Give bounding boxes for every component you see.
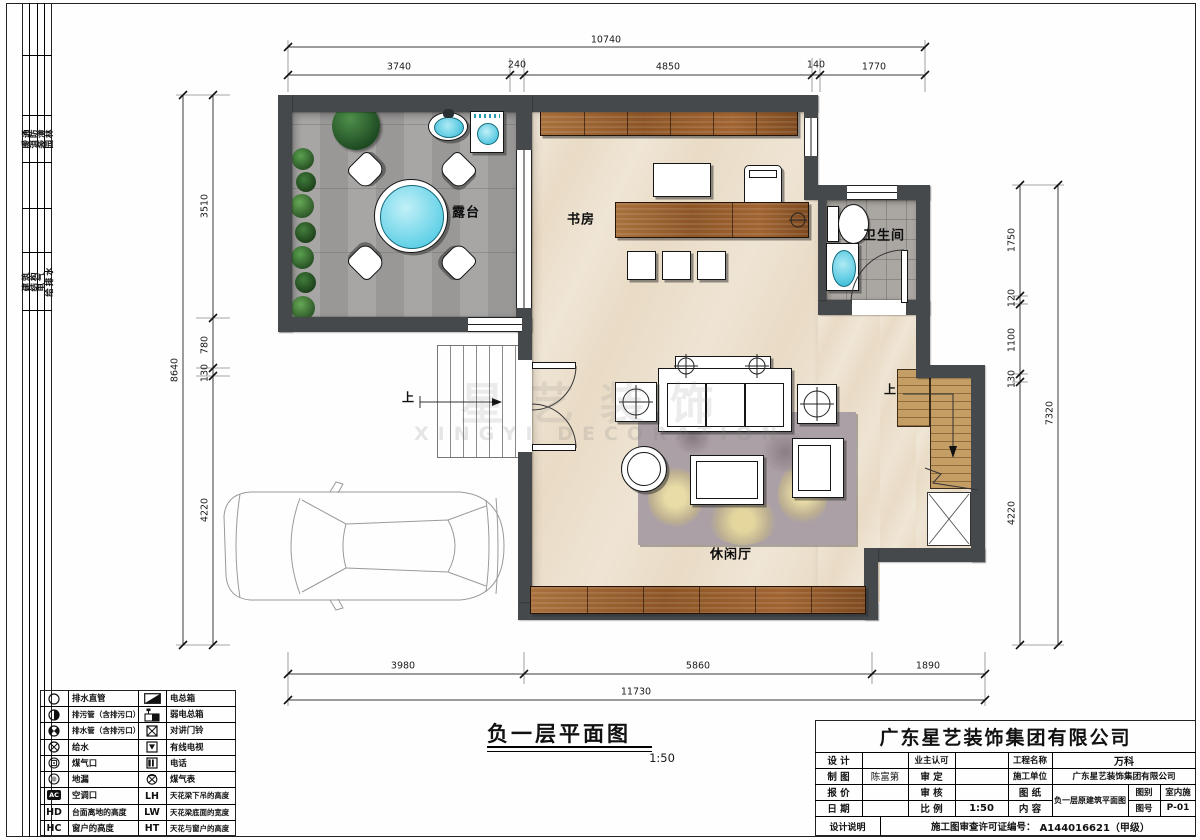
dim-right-seg: 130 — [1007, 370, 1018, 388]
stair-up-label-right: 上 — [884, 381, 896, 398]
plant — [291, 246, 314, 269]
tb-permit-label: 施工图审查许可证编号： — [931, 819, 1036, 833]
drawing-sheet: 暖通 消防 装潢 园林 建筑 结构 电气 给排水 — [0, 0, 1200, 840]
tb-value-category: 室内施 — [1160, 784, 1196, 800]
entrance-opening — [518, 360, 532, 452]
study-chair — [744, 165, 782, 207]
drain-pipe-icon — [48, 693, 60, 705]
lh-code: LH — [142, 790, 162, 802]
dim-bottom-seg: 5860 — [686, 661, 710, 672]
stairs-flight — [930, 369, 976, 489]
legend-label: 弱电总箱 — [170, 706, 204, 722]
stool — [662, 251, 691, 280]
entrance-door-leaf — [532, 362, 576, 369]
study-wall-cabinet — [540, 110, 798, 136]
cabinet-divider — [755, 587, 756, 613]
plant — [290, 194, 314, 218]
weak-current-box-icon — [144, 708, 161, 722]
dim-right-seg: 120 — [1007, 289, 1018, 307]
dim-top-seg: 140 — [807, 60, 825, 71]
coffee-table — [690, 455, 764, 505]
hd-code: HD — [44, 806, 64, 818]
dim-left-total: 8640 — [170, 358, 181, 382]
dim-right-seg: 1100 — [1007, 328, 1018, 352]
exterior-stairs — [437, 345, 530, 458]
legend-label: 给水 — [72, 739, 89, 755]
tb-label-category: 图别 — [1128, 784, 1160, 800]
dim-left-seg: 780 — [200, 336, 211, 354]
legend-label: 台面离地的高度 — [72, 804, 127, 820]
dim-top-seg: 240 — [508, 60, 526, 71]
legend-label: 电总箱 — [170, 690, 195, 706]
sofa-cushion — [745, 383, 784, 427]
lift-shaft — [927, 492, 971, 546]
tb-label-quote: 报 价 — [815, 784, 862, 800]
legend-label: 地漏 — [72, 771, 89, 787]
intercom-doorbell-icon — [146, 725, 158, 737]
cabinet-divider — [584, 111, 585, 135]
terrace-basin — [428, 112, 468, 141]
title-underline — [487, 751, 652, 752]
legend-label: 排水直管 — [72, 690, 106, 706]
wall-segment — [278, 95, 292, 332]
tb-label-number: 图号 — [1128, 800, 1160, 816]
hc-code: HC — [44, 822, 64, 834]
ht-code: HT — [142, 822, 162, 834]
water-supply-icon — [48, 741, 60, 753]
tb-line — [880, 816, 881, 836]
tb-line — [862, 752, 863, 816]
strip-line — [22, 162, 52, 163]
bathroom-window — [847, 185, 897, 200]
dim-top-seg: 1770 — [862, 62, 886, 73]
terrace-table-glass — [380, 185, 444, 249]
tb-label-drafting: 制 图 — [815, 768, 862, 784]
ac-code: AC — [49, 791, 59, 799]
tb-label-review: 审 核 — [908, 784, 955, 800]
bathroom-door-opening — [852, 300, 906, 315]
dim-left-seg: 130 — [200, 364, 211, 382]
strip-line — [22, 252, 52, 253]
dim-left-seg: 4220 — [200, 498, 211, 522]
legend-label: 天花梁底面的宽度 — [170, 804, 229, 820]
tb-label-date: 日 期 — [815, 800, 862, 816]
tb-label-note: 设计说明 — [815, 816, 880, 836]
vanity-basin — [832, 250, 856, 287]
tb-value-scale: 1:50 — [955, 800, 1008, 816]
desk-divider — [732, 203, 733, 237]
tb-label-sheet: 图 纸 — [1008, 784, 1052, 800]
plant — [296, 172, 316, 192]
room-label-bathroom: 卫生间 — [863, 225, 905, 244]
floor-drain-icon — [48, 773, 60, 785]
legend-label: 煤气口 — [72, 755, 97, 771]
basin-faucet — [443, 109, 454, 118]
bathroom-door-leaf — [901, 250, 908, 303]
cabinet-divider — [670, 111, 671, 135]
tb-label-project: 工程名称 — [1008, 752, 1052, 768]
legend-label: 煤气表 — [170, 771, 195, 787]
room-label-terrace: 露台 — [452, 202, 480, 221]
room-label-study: 书房 — [567, 209, 595, 228]
legend-label: 有线电视 — [170, 739, 204, 755]
washer-drum — [477, 123, 499, 145]
tb-permit-value: A144016621（甲级） — [1040, 819, 1150, 834]
plan-scale: 1:50 — [649, 751, 675, 765]
main-electric-box-icon — [144, 693, 161, 704]
tb-permit: 施工图审查许可证编号： A144016621（甲级） — [885, 816, 1196, 836]
dim-right-seg: 1750 — [1007, 228, 1018, 252]
terrace-table — [374, 179, 448, 253]
strip-line — [22, 208, 52, 209]
legend-label: 天花梁下吊的高度 — [170, 787, 229, 803]
dim-right-total: 7320 — [1045, 401, 1056, 425]
plant — [295, 272, 316, 293]
stool — [697, 251, 726, 280]
round-table-top — [627, 452, 661, 486]
sofa-cushion — [667, 383, 706, 427]
dim-right-seg: 4220 — [1007, 501, 1018, 525]
cabinet-divider — [811, 587, 812, 613]
legend-label: 空调口 — [72, 787, 97, 803]
legend-label: 电话 — [170, 755, 187, 771]
sewage-pipe-icon — [48, 709, 60, 721]
telephone-icon — [146, 757, 158, 769]
gas-meter-icon — [146, 773, 158, 785]
round-table — [621, 446, 667, 492]
tb-value-drafting: 陈富第 — [862, 768, 908, 784]
tb-label-content: 内 容 — [1008, 800, 1052, 816]
sofa-cushion — [706, 383, 745, 427]
armchair — [792, 438, 844, 498]
wall-segment — [916, 185, 930, 315]
wall-segment — [916, 365, 985, 378]
stair-up-label-left: 上 — [402, 389, 414, 406]
study-desk — [615, 202, 809, 238]
tb-label-owner: 业主认可 — [908, 752, 955, 768]
tb-label-contractor: 施工单位 — [1008, 768, 1052, 784]
entrance-door-leaf — [532, 444, 576, 451]
plant — [295, 222, 316, 243]
cabinet-divider — [587, 587, 588, 613]
wall-segment — [278, 95, 818, 112]
legend-label: 排污管（含排污口） — [72, 706, 140, 722]
strip-line — [22, 310, 52, 311]
lw-code: LW — [142, 806, 162, 818]
terrace-window — [516, 150, 532, 308]
ac-vent-icon: AC — [47, 790, 61, 800]
side-table-right — [797, 384, 837, 424]
cabinet-divider — [713, 111, 714, 135]
basin-bowl — [434, 117, 464, 138]
dim-top-seg: 4850 — [656, 62, 680, 73]
cabinet-divider — [643, 587, 644, 613]
dim-bottom-seg: 3980 — [391, 661, 415, 672]
vanity — [826, 243, 859, 291]
study-cabinet — [653, 163, 711, 197]
tb-label-design: 设 计 — [815, 752, 862, 768]
wall-segment — [878, 548, 985, 562]
dim-top-seg: 3740 — [387, 62, 411, 73]
waste-pipe-icon — [48, 725, 60, 737]
tb-value-number: P-01 — [1160, 800, 1196, 816]
legend-line — [166, 690, 167, 836]
terrace-bottom-window — [468, 317, 522, 332]
plant-bed — [290, 148, 320, 320]
wall-segment — [971, 378, 985, 562]
tb-label-approve: 审 定 — [908, 768, 955, 784]
washing-machine — [470, 111, 504, 153]
armchair-seat — [798, 445, 831, 491]
legend-label: 对讲门铃 — [170, 722, 204, 738]
coffee-table-top — [696, 461, 758, 499]
company-name: 广东星艺装饰集团有限公司 — [815, 722, 1196, 750]
discipline-label: 给排水 — [43, 265, 55, 297]
dim-left-seg: 3510 — [200, 194, 211, 218]
tb-value-contractor: 广东星艺装饰集团有限公司 — [1052, 768, 1196, 784]
dim-bottom-seg: 1890 — [916, 661, 940, 672]
cabinet-divider — [699, 587, 700, 613]
strip-line — [22, 55, 52, 56]
gas-port-icon — [48, 757, 60, 769]
washer-panel — [474, 114, 500, 118]
cabinet-divider — [627, 111, 628, 135]
side-table-left — [615, 382, 657, 422]
strip-line — [22, 115, 52, 116]
tb-label-scale: 比 例 — [908, 800, 955, 816]
legend-label: 天花与窗户的高度 — [170, 820, 229, 836]
plan-title: 负一层平面图 — [487, 718, 631, 748]
cable-tv-icon — [146, 741, 158, 753]
wall-segment — [818, 200, 826, 300]
legend-line — [68, 690, 69, 836]
dim-bottom-total: 11730 — [621, 687, 651, 698]
room-label-lounge: 休闲厅 — [710, 544, 752, 563]
sofa — [658, 368, 792, 432]
chair-back — [749, 170, 777, 178]
discipline-label: 园林 — [43, 127, 55, 148]
tb-value-content: 负一层原建筑平面图 — [1052, 784, 1128, 816]
study-window — [804, 118, 818, 156]
plant — [292, 148, 314, 170]
legend-label: 窗户的高度 — [72, 820, 114, 836]
main-floor-ext — [880, 310, 916, 548]
dim-top-total: 10740 — [591, 35, 621, 46]
lounge-wall-cabinet — [530, 586, 866, 614]
tb-value-project: 万科 — [1052, 752, 1196, 768]
cabinet-divider — [756, 111, 757, 135]
stool — [627, 251, 656, 280]
legend-label: 排水管（含排污口） — [72, 722, 140, 738]
